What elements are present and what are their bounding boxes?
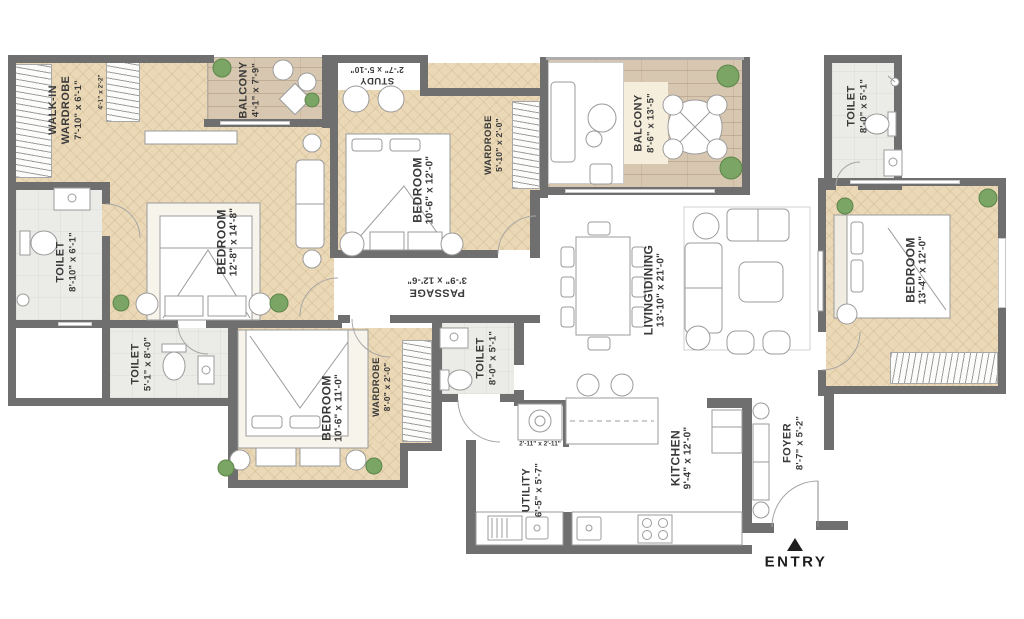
wiw-closet-top [106,62,140,122]
window [998,238,1006,308]
sofa-set-living [684,207,823,354]
kitchen-counter [572,512,742,545]
wardrobe-4-closet [402,340,432,442]
refrigerator [712,410,742,453]
floor-blank-room [16,328,102,398]
window [565,189,715,193]
bedroom-3-closet [890,352,998,384]
foyer-cabinet [753,403,769,518]
balcony-2-seating-area [548,62,624,184]
dining-table [561,222,645,350]
floor-toilet-3 [110,328,228,398]
window [58,322,92,326]
wardrobe-2-closet [512,101,540,189]
sliding-door [220,121,290,125]
kitchen-island [566,374,658,444]
window [850,180,960,184]
entry-label: ENTRY [765,554,828,571]
washing-machine [518,404,562,440]
floor-balcony-1 [207,57,324,121]
floor-bedroom-4b [238,443,400,480]
entry-arrow-icon [787,538,803,551]
floor-plan: WALK-IN WARDROBE7'-10" x 6'-1" 4'-1" x 2… [0,0,1024,619]
